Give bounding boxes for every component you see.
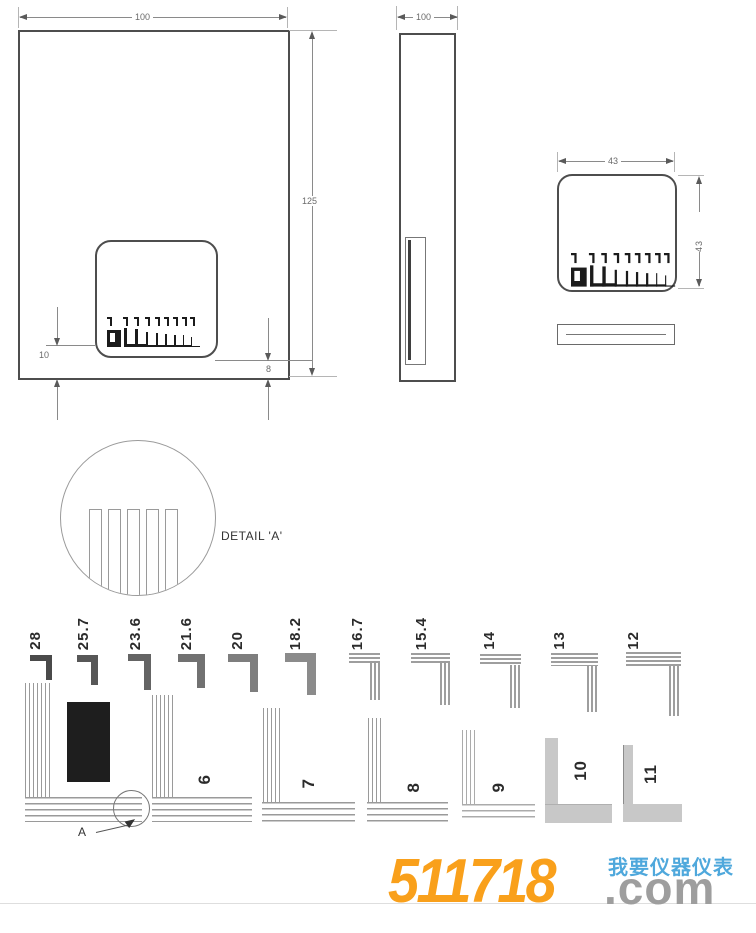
pitch-mark-bar: [411, 653, 450, 663]
card-height-dimension: 43: [694, 240, 704, 252]
comb-glyph: [571, 268, 587, 287]
comb-pin: [574, 253, 576, 263]
pitch-mark-leg: [510, 665, 521, 708]
pitch-label: 20: [228, 594, 246, 650]
pitch-label: 21.6: [177, 594, 195, 650]
arrowhead-left: [19, 14, 27, 20]
comb-glyph: [191, 337, 200, 347]
comb-vertical-arm: [623, 745, 633, 805]
pitch-mark-leg: [587, 666, 598, 712]
side-view-slot-bar: [408, 240, 411, 360]
comb-pin: [158, 317, 160, 326]
comb-number: 10: [571, 741, 591, 781]
card-edge-inner-line: [566, 334, 666, 335]
extension-line: [287, 7, 288, 28]
arrowhead-up: [54, 379, 60, 387]
comb-number: 11: [641, 744, 661, 784]
pitch-mark-leg: [91, 662, 98, 685]
comb-pin: [592, 253, 594, 263]
comb-pin: [126, 317, 128, 326]
detail-finger: [108, 509, 121, 596]
arrowhead-down: [265, 353, 271, 361]
pitch-label: 18.2: [286, 594, 304, 650]
comb-pin: [667, 253, 669, 263]
pitch-mark-bar: [285, 653, 316, 662]
pitch-label: 23.6: [126, 594, 144, 650]
comb-vertical-arm: [25, 683, 50, 797]
comb-number: 9: [489, 752, 509, 792]
arrowhead-right: [666, 158, 674, 164]
detail-finger: [146, 509, 159, 596]
arrowhead-up: [265, 379, 271, 387]
comb-horizontal-arm: [462, 804, 535, 822]
comb-vertical-arm: [368, 718, 383, 802]
pitch-mark-leg: [46, 661, 52, 680]
arrowhead-down: [54, 338, 60, 346]
side-width-dimension: 100: [413, 12, 434, 22]
card-width-dimension: 43: [605, 156, 621, 166]
extension-line: [678, 288, 704, 289]
comb-horizontal-arm: [623, 804, 682, 822]
comb-pin: [658, 253, 660, 263]
comb-pin: [185, 317, 187, 326]
pitch-mark-leg: [307, 662, 316, 695]
comb-pin: [137, 317, 139, 326]
black-die-rectangle: [67, 702, 110, 782]
arrowhead-down: [696, 279, 702, 287]
detail-a-title: DETAIL 'A': [221, 529, 283, 543]
dimension-leader: [57, 307, 58, 338]
detail-a-circle: [60, 440, 216, 596]
comb-number: 7: [299, 748, 319, 788]
pitch-mark-leg: [440, 663, 450, 705]
arrowhead-right: [450, 14, 458, 20]
detail-finger: [165, 509, 178, 596]
pitch-mark-bar: [349, 653, 380, 663]
comb-horizontal-arm: [367, 802, 448, 822]
pitch-label: 25.7: [74, 594, 92, 650]
comb-vertical-arm: [152, 695, 173, 797]
comb-pattern: [107, 317, 203, 347]
pitch-mark-leg: [144, 661, 151, 690]
comb-pin: [648, 253, 650, 263]
comb-horizontal-arm: [152, 797, 252, 822]
pitch-mark-leg: [370, 663, 380, 700]
watermark-number: 511718: [388, 846, 554, 917]
pitch-mark-bar: [480, 654, 521, 665]
front-offset-right-dimension: 8: [263, 364, 274, 374]
comb-vertical-arm: [545, 738, 558, 805]
detail-finger: [89, 509, 102, 596]
pitch-mark-bar: [626, 652, 681, 666]
arrowhead-up: [696, 176, 702, 184]
dimension-leader: [57, 386, 58, 420]
comb-vertical-arm: [263, 708, 282, 802]
comb-pin: [167, 317, 169, 326]
extension-line: [289, 376, 337, 377]
callout-leader-line: [96, 825, 128, 833]
comb-pin: [628, 253, 630, 263]
pitch-label: 13: [550, 594, 568, 650]
arrowhead-up: [309, 31, 315, 39]
pitch-mark-bar: [77, 655, 98, 662]
comb-pin: [617, 253, 619, 263]
comb-pattern: [571, 253, 679, 287]
comb-horizontal-arm: [262, 802, 355, 822]
pitch-mark-bar: [128, 654, 151, 661]
arrowhead-left: [397, 14, 405, 20]
comb-number: 6: [195, 744, 215, 784]
dimension-line: [215, 360, 312, 361]
comb-pin: [110, 317, 112, 326]
watermark-tld: .com: [604, 861, 715, 915]
pitch-mark-bar: [178, 654, 205, 662]
comb-horizontal-arm: [545, 804, 612, 823]
detail-finger: [127, 509, 140, 596]
comb-pin: [193, 317, 195, 326]
arrowhead-right: [279, 14, 287, 20]
pitch-label: 28: [26, 594, 44, 650]
comb-pin: [176, 317, 178, 326]
front-width-dimension: 100: [132, 12, 153, 22]
pitch-mark-leg: [197, 662, 205, 688]
pitch-label: 14: [480, 594, 498, 650]
dimension-leader: [268, 386, 269, 420]
dimension-leader: [268, 318, 269, 353]
front-offset-left-dimension: 10: [36, 350, 52, 360]
pitch-label: 15.4: [412, 594, 430, 650]
pitch-label: 16.7: [348, 594, 366, 650]
pitch-mark-leg: [669, 666, 681, 716]
comb-glyph: [665, 275, 675, 286]
comb-pin: [605, 253, 607, 263]
comb-pin: [638, 253, 640, 263]
comb-vertical-arm: [462, 730, 475, 805]
arrowhead-down: [309, 368, 315, 376]
technical-drawing-canvas: 100 125 10 8 100: [0, 0, 756, 933]
pitch-mark-leg: [250, 662, 258, 692]
pitch-label: 12: [624, 594, 642, 650]
pitch-mark-bar: [551, 653, 598, 666]
comb-number: 8: [404, 752, 424, 792]
pitch-mark-bar: [228, 654, 258, 662]
detail-callout-label: A: [78, 825, 86, 839]
extension-line: [674, 152, 675, 172]
front-height-dimension: 125: [299, 196, 320, 206]
comb-pin: [148, 317, 150, 326]
arrowhead-left: [558, 158, 566, 164]
comb-glyph: [107, 330, 121, 347]
